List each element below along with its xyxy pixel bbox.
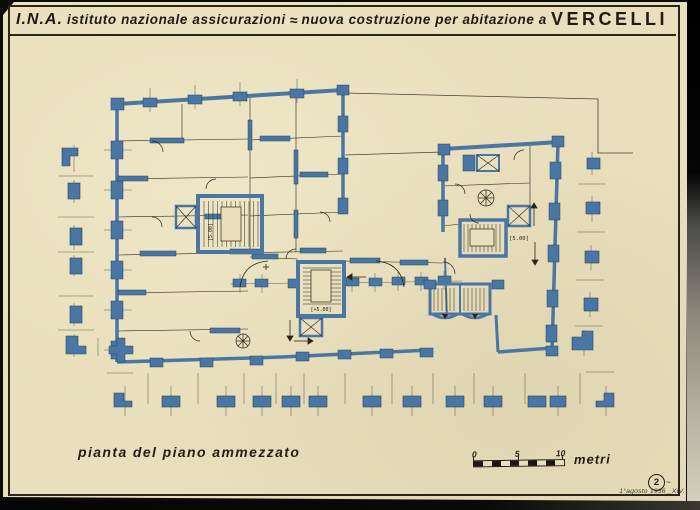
- spiral-stairs: [236, 190, 494, 348]
- scale-bar: 0 5 10 metri: [468, 447, 678, 476]
- scale-label-10: 10: [556, 448, 566, 458]
- central-stair-level-label: [+5.00]: [310, 307, 331, 313]
- right-stair-level-label: [5.00]: [509, 236, 529, 242]
- dimension-lines: [58, 79, 614, 416]
- left-stair-level-label: [5.00]: [208, 223, 214, 241]
- scale-bar-segments: [473, 459, 565, 467]
- plan-caption: pianta del piano ammezzato: [78, 444, 300, 460]
- date-note: 1°agosto 1936 _XIV.: [590, 488, 685, 495]
- floor-plan: [5.00] [+5.00] [5.00]: [0, 0, 700, 510]
- free-columns: [62, 148, 614, 407]
- stair-core-left: [176, 196, 262, 252]
- sheet-number-tail-mark: ~: [666, 478, 671, 487]
- scale-unit-label: metri: [574, 451, 611, 467]
- stair-core-central: [240, 261, 404, 336]
- scanned-drawing-sheet: { "header": { "org_abbr": "I.N.A.", "org…: [0, 0, 700, 510]
- double-stair: [424, 280, 504, 319]
